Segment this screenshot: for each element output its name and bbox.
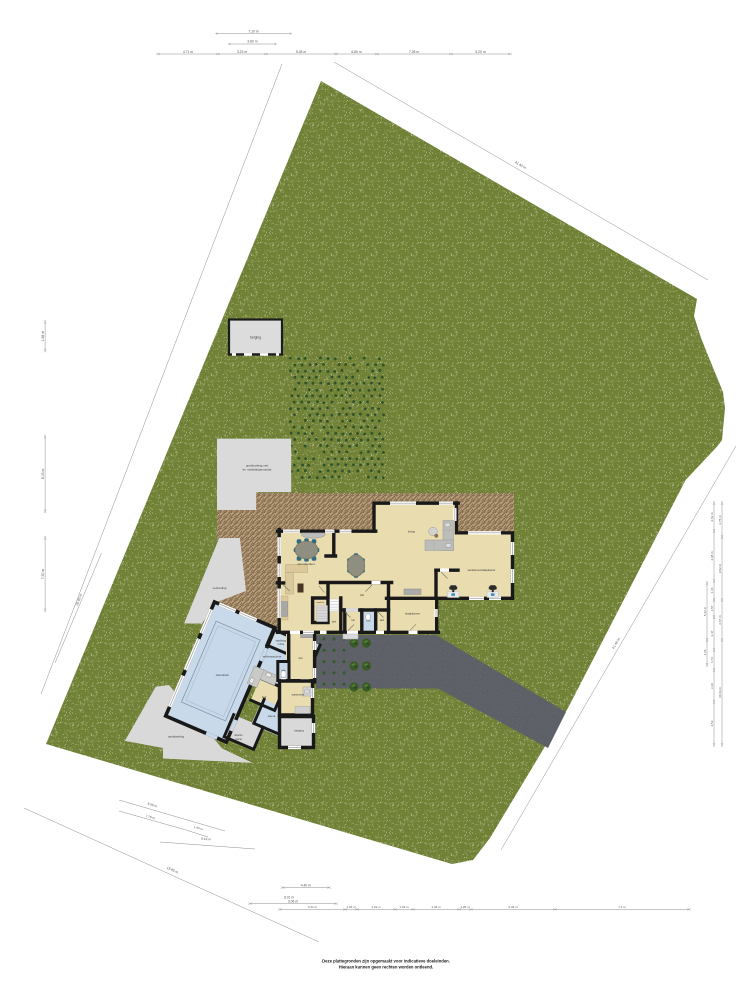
svg-text:4.40 m: 4.40 m	[301, 883, 312, 887]
svg-text:7.76 m: 7.76 m	[145, 814, 156, 821]
svg-text:Hieraan kunnen geen rechten wo: Hieraan kunnen geen rechten worden ontle…	[339, 965, 433, 970]
svg-text:3.21 m: 3.21 m	[308, 905, 318, 909]
svg-text:1.40 m: 1.40 m	[193, 825, 203, 832]
svg-text:1.16: 1.16	[710, 587, 714, 593]
svg-text:41.48 m: 41.48 m	[611, 637, 621, 650]
svg-text:4.38 m: 4.38 m	[710, 551, 714, 561]
svg-text:kast: kast	[380, 619, 385, 622]
svg-text:ruimte: ruimte	[278, 643, 285, 646]
svg-text:hal: hal	[360, 593, 364, 597]
svg-text:1.73: 1.73	[710, 657, 714, 663]
svg-text:hal: hal	[351, 619, 355, 622]
svg-text:1.26: 1.26	[703, 649, 707, 655]
svg-text:1.05 m: 1.05 m	[460, 905, 470, 909]
svg-text:3.60 m: 3.60 m	[247, 40, 258, 44]
svg-text:2.53: 2.53	[710, 720, 714, 726]
svg-text:2.75 m: 2.75 m	[718, 515, 722, 525]
svg-text:trapkast: trapkast	[316, 601, 324, 604]
svg-text:5.22 m: 5.22 m	[703, 606, 707, 616]
svg-text:bad: bad	[262, 695, 267, 699]
svg-text:2.47: 2.47	[710, 630, 714, 636]
svg-text:sauna: sauna	[268, 714, 276, 718]
svg-text:werkkamer/slaapkamer: werkkamer/slaapkamer	[468, 568, 496, 572]
svg-text:7.10 m: 7.10 m	[248, 29, 259, 33]
svg-text:7.28 m: 7.28 m	[409, 50, 420, 54]
svg-text:2.63 m: 2.63 m	[710, 512, 714, 522]
svg-text:douche: douche	[234, 734, 243, 737]
svg-text:toilet: toilet	[366, 620, 371, 623]
svg-text:1.98 m: 1.98 m	[41, 331, 45, 342]
svg-text:1.57: 1.57	[710, 605, 714, 611]
svg-text:2.67 m: 2.67 m	[718, 615, 722, 625]
svg-text:living: living	[408, 530, 415, 534]
svg-text:6.80 m: 6.80 m	[351, 50, 362, 54]
svg-text:wellnessruimte: wellnessruimte	[263, 655, 282, 659]
svg-text:8.98 m: 8.98 m	[147, 802, 158, 809]
svg-text:zwembad: zwembad	[216, 673, 229, 677]
svg-text:wasruimte: wasruimte	[292, 693, 305, 697]
svg-text:41.43 m: 41.43 m	[514, 160, 527, 170]
svg-text:3.23 m: 3.23 m	[237, 50, 248, 54]
svg-text:3.06 m: 3.06 m	[288, 900, 299, 904]
svg-text:8.03 m: 8.03 m	[41, 469, 45, 480]
svg-text:verharding: verharding	[213, 586, 227, 590]
svg-text:woonkeuken: woonkeuken	[297, 562, 315, 566]
svg-text:ruimte: ruimte	[235, 738, 243, 741]
svg-text:1.01 m: 1.01 m	[371, 905, 381, 909]
svg-text:Deze plattegronden zijn opgema: Deze plattegronden zijn opgemaakt voor i…	[322, 959, 450, 964]
svg-text:1.32 m: 1.32 m	[346, 905, 356, 909]
svg-text:1.03 m: 1.03 m	[399, 905, 409, 909]
svg-text:berging: berging	[250, 336, 261, 340]
svg-text:4.71 m: 4.71 m	[183, 50, 194, 54]
svg-text:bv. scheidingsmuurtje: bv. scheidingsmuurtje	[243, 467, 272, 471]
svg-text:7.50 m: 7.50 m	[41, 569, 45, 580]
svg-text:was/droog: was/droog	[276, 640, 287, 643]
svg-text:berging: berging	[294, 729, 304, 733]
svg-text:5.28 m: 5.28 m	[296, 50, 307, 54]
svg-text:1.46 m: 1.46 m	[431, 905, 441, 909]
svg-text:9.19 m: 9.19 m	[201, 837, 211, 842]
svg-text:slaapkamer: slaapkamer	[405, 612, 420, 616]
svg-text:5.20 m: 5.20 m	[475, 50, 486, 54]
svg-text:toilet: toilet	[281, 669, 286, 672]
svg-text:2.46 m: 2.46 m	[508, 905, 518, 909]
svg-text:oprit/parking: oprit/parking	[168, 735, 184, 739]
svg-text:9.52 m: 9.52 m	[718, 563, 722, 573]
svg-text:hal: hal	[299, 656, 303, 660]
svg-text:7.1 m: 7.1 m	[618, 905, 626, 909]
svg-text:2.26: 2.26	[710, 683, 714, 689]
svg-text:kast: kast	[332, 621, 337, 624]
svg-text:10.63 m: 10.63 m	[718, 687, 722, 698]
